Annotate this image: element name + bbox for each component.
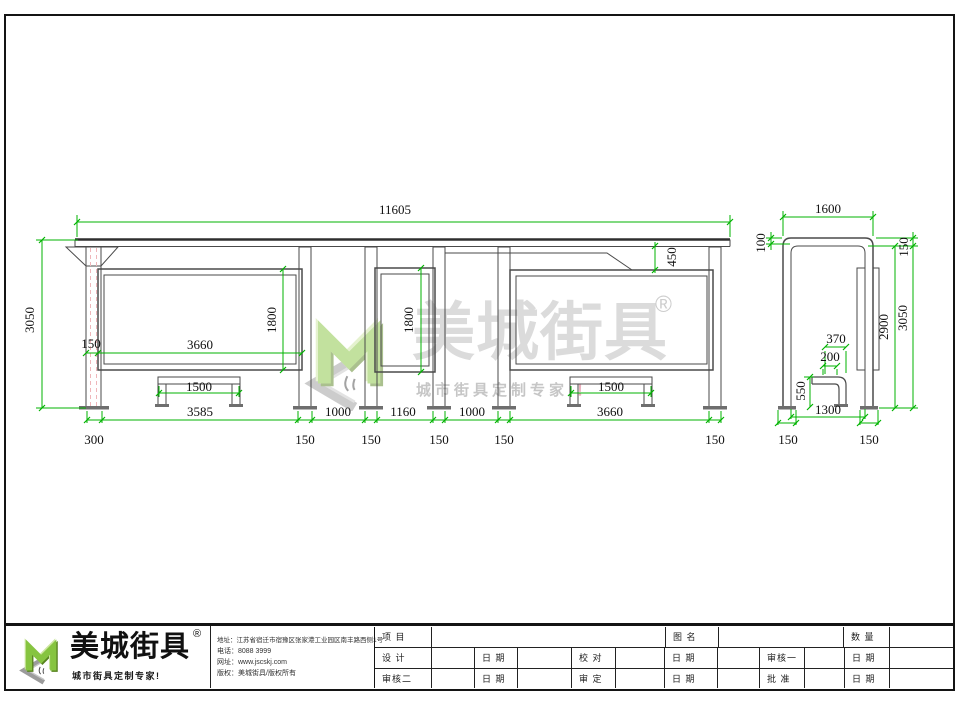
- front-elevation: [36, 215, 733, 423]
- title-block-value-cell: [431, 648, 474, 668]
- title-block-label-cell: 审核一: [759, 648, 804, 668]
- title-block-label-cell: 日 期: [844, 669, 889, 689]
- company-address: 地址：江苏省宿迁市宿豫区张家港工业园区南丰路西侧1号: [217, 635, 373, 646]
- drawing-sheet: { "colors": { "dimension_green": "#00b30…: [0, 0, 960, 704]
- title-block-label-cell: 批 准: [759, 669, 804, 689]
- title-block-label-cell: 图 名: [665, 627, 718, 648]
- title-block-label-cell: 日 期: [474, 648, 517, 668]
- title-block-value-cell: [889, 669, 953, 689]
- title-block-table: 项 目图 名数 量 设 计日 期校 对日 期审核一日 期 审核二日 期审 定日 …: [374, 627, 953, 689]
- title-block-value-cell: [717, 648, 759, 668]
- drawing-linework: [0, 0, 960, 704]
- company-logo: [15, 628, 69, 686]
- title-block-label-cell: 日 期: [844, 648, 889, 668]
- title-block-label-cell: 日 期: [664, 669, 717, 689]
- title-block-value-cell: [615, 648, 664, 668]
- title-block-label-cell: 数 量: [843, 627, 889, 648]
- company-brand-text: 美城街具: [70, 632, 190, 664]
- title-block-value-cell: [431, 669, 474, 689]
- side-elevation: [766, 211, 918, 426]
- title-block-row: 项 目图 名数 量: [375, 627, 953, 648]
- title-block-value-cell: [889, 648, 953, 668]
- title-block-row: 设 计日 期校 对日 期审核一日 期: [375, 647, 953, 668]
- title-block-label-cell: 设 计: [375, 648, 431, 668]
- company-contact-info: 地址：江苏省宿迁市宿豫区张家港工业园区南丰路西侧1号 电话：8088 3999 …: [217, 635, 373, 679]
- title-block-label-cell: 项 目: [375, 627, 431, 648]
- title-block-label-cell: 校 对: [571, 648, 615, 668]
- title-block-label-cell: 审 定: [571, 669, 615, 689]
- title-block-value-cell: [804, 669, 844, 689]
- title-block-divider: [210, 626, 211, 688]
- title-block-value-cell: [615, 669, 664, 689]
- title-block-label-cell: 日 期: [474, 669, 517, 689]
- title-block-value-cell: [889, 627, 953, 648]
- company-tagline: 城市街具定制专家!: [72, 669, 161, 682]
- company-phone: 电话：8088 3999: [217, 646, 373, 657]
- company-copyright: 版权：美城街具/版权所有: [217, 668, 373, 679]
- title-block-row: 审核二日 期审 定日 期批 准日 期: [375, 668, 953, 689]
- title-block-value-cell: [517, 669, 571, 689]
- title-block-value-cell: [718, 627, 843, 648]
- title-block-label-cell: 日 期: [664, 648, 717, 668]
- title-block-value-cell: [804, 648, 844, 668]
- title-block-label-cell: 审核二: [375, 669, 431, 689]
- company-website: 网址：www.jscskj.com: [217, 657, 373, 668]
- title-block-value-cell: [717, 669, 759, 689]
- title-block-value-cell: [431, 627, 665, 648]
- registered-trademark-icon: ®: [193, 628, 201, 640]
- title-block-value-cell: [517, 648, 571, 668]
